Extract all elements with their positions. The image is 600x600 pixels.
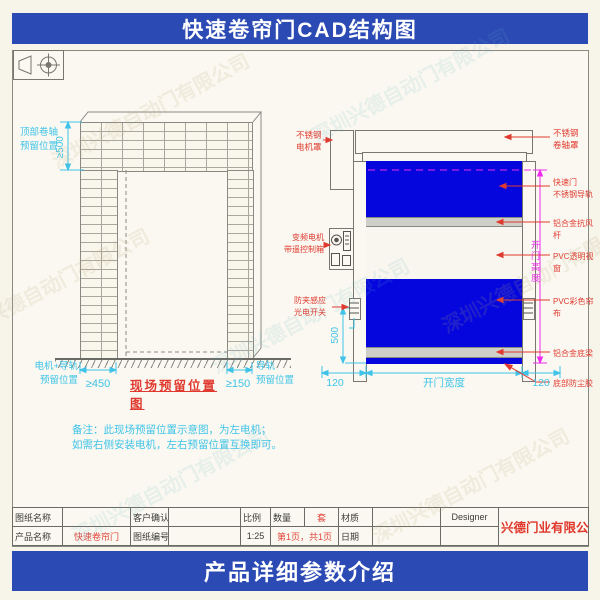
note-line-1: 备注：此现场预留位置示意图，为左电机； xyxy=(72,423,272,438)
curtain-blue-top xyxy=(366,161,522,217)
title-block: 图纸名称 客户确认 比例 数量 套 材质 Designer 兴德门业有限公司 产… xyxy=(12,507,589,546)
window-section xyxy=(366,227,522,279)
company-name: 兴德门业有限公司 xyxy=(499,508,589,546)
photo-switch-left xyxy=(349,298,361,320)
door-height-label: 开门高度 xyxy=(528,240,541,284)
pvc-window-label: PVC透明视窗 xyxy=(553,251,599,274)
field-material: 材质 xyxy=(339,508,373,527)
guide-rail-label: 快速门 不锈钢导轨 xyxy=(553,177,599,200)
bottom-seal-strip xyxy=(366,358,522,364)
pvc-curtain-label: PVC彩色帘布 xyxy=(553,296,599,319)
field-quantity: 数量 xyxy=(271,508,305,527)
motor-rail-reserve-label: 电机+导轨 预留位置 xyxy=(16,360,78,388)
bottom-beam-band xyxy=(366,347,522,358)
control-box xyxy=(329,228,354,270)
wind-bar-label: 铝合金抗风杆 xyxy=(553,218,599,241)
value-quantity-unit: 套 xyxy=(305,508,339,527)
top-banner-title: 快速卷帘门CAD结构图 xyxy=(12,13,588,44)
field-drawing-number: 图纸编号 xyxy=(131,527,169,546)
value-drawing-name xyxy=(63,508,131,527)
value-customer-confirm xyxy=(169,508,241,527)
top-roller-reserve-label: 顶部卷轴 预留位置 xyxy=(14,126,58,154)
note-line-2: 如需右侧安装电机，左右预留位置互换即可。 xyxy=(72,438,282,453)
field-customer-confirm: 客户确认 xyxy=(131,508,169,527)
dim-bottom-left-120: 120 xyxy=(320,376,350,391)
roller-cover-label: 不锈钢 卷轴罩 xyxy=(553,127,599,152)
field-scale: 比例 xyxy=(241,508,271,527)
value-product-name: 快速卷帘门 xyxy=(63,527,131,546)
bottom-beam-label: 铝合金底梁 xyxy=(553,348,599,360)
field-product-name: 产品名称 xyxy=(13,527,63,546)
field-drawing-name: 图纸名称 xyxy=(13,508,63,527)
rail-reserve-label: 导轨 预留位置 xyxy=(256,360,300,388)
dim-top-500: ≥500 xyxy=(54,132,69,162)
control-box-label: 变频电机 带遥控制箱 xyxy=(282,232,324,255)
bottom-banner-title: 产品详细参数介绍 xyxy=(12,551,588,591)
dim-right-150: ≥150 xyxy=(220,377,256,393)
motor-cover-box xyxy=(330,130,354,190)
field-designer: Designer xyxy=(441,508,499,527)
value-drawing-number xyxy=(169,527,241,546)
cad-sheet: 快速卷帘门CAD结构图 产品详细参数介绍 xyxy=(0,0,600,600)
photo-switch-label: 防夹感应 光电开关 xyxy=(294,295,330,318)
value-scale: 1:25 xyxy=(241,527,271,546)
wall-pier-right xyxy=(227,170,254,360)
value-material xyxy=(373,508,441,527)
field-date: 日期 xyxy=(339,527,373,546)
curtain-blue-bottom xyxy=(366,279,522,347)
photo-switch-right xyxy=(523,298,535,320)
door-width-label: 开门宽度 xyxy=(408,376,480,391)
value-page-count: 第1页，共1页 xyxy=(271,527,339,546)
dim-left-450: ≥450 xyxy=(80,377,116,393)
dim-side-500: 500 xyxy=(329,321,344,349)
motor-cover-label: 不锈钢 电机罩 xyxy=(296,129,324,154)
track-left xyxy=(353,161,367,382)
wall-lintel xyxy=(80,122,253,172)
roller-cover-box xyxy=(355,130,533,154)
value-date xyxy=(373,527,441,546)
bottom-seal-label: 底部防尘胶 xyxy=(553,378,599,390)
site-reserve-diagram-title: 现场预留位置图 xyxy=(130,377,220,413)
value-designer xyxy=(441,527,499,546)
wind-bar-band xyxy=(366,217,522,227)
wall-pier-left xyxy=(80,170,118,360)
dim-bottom-right-120: 120 xyxy=(526,376,556,391)
